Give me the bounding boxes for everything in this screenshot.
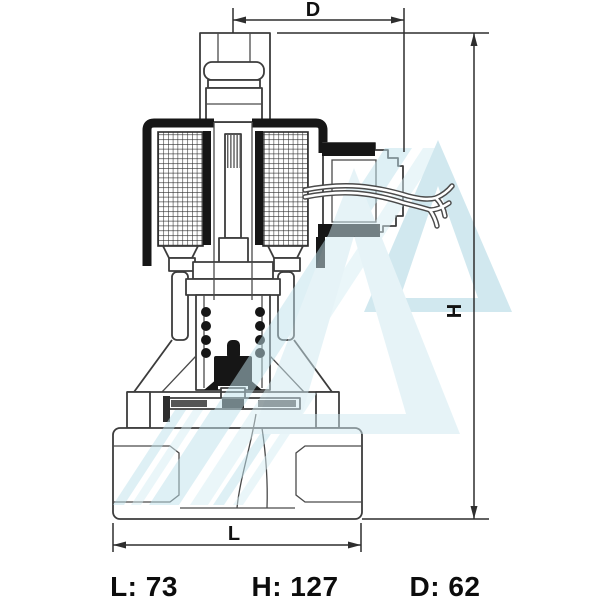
- l-arrow-right: [348, 542, 361, 549]
- coil-terminal-right: [274, 258, 300, 271]
- coil-terminal-left: [169, 258, 195, 271]
- h-dim-label: H: [444, 304, 466, 318]
- connector-neck: [208, 80, 260, 88]
- flange-flare-inner: [162, 356, 196, 392]
- diaphragm-inset-left: [171, 400, 207, 407]
- d-dim-label: D: [306, 0, 320, 21]
- hex-flat-left: [127, 392, 150, 428]
- core-bar-left: [203, 131, 211, 245]
- armature-hatch: [226, 135, 240, 168]
- coil-winding-left: [158, 132, 203, 246]
- dimension-l: L: [113, 523, 361, 552]
- h-arrow-bottom: [471, 506, 478, 519]
- solenoid-valve-diagram: D H L L: 73 H: 127 D: 62: [0, 0, 600, 600]
- value-d: D: 62: [410, 571, 481, 600]
- l-arrow-left: [113, 542, 126, 549]
- diaphragm-hook: [163, 396, 170, 422]
- gland-top-bar: [322, 143, 375, 156]
- connector-plug: [200, 33, 270, 122]
- bobbin-foot-left: [163, 246, 198, 258]
- connector-cap: [204, 62, 264, 80]
- l-dim-label: L: [228, 523, 240, 545]
- drawing-canvas: D H L L: 73 H: 127 D: 62: [0, 0, 600, 600]
- flange-flare: [134, 340, 172, 392]
- bonnet-plate-upper: [193, 262, 273, 279]
- bobbin-foot-right: [268, 246, 303, 258]
- value-l: L: 73: [110, 571, 178, 600]
- core-bar-right: [255, 131, 263, 245]
- d-arrow-right: [391, 17, 404, 24]
- connector-body: [206, 88, 262, 122]
- h-arrow-top: [471, 33, 478, 46]
- dimension-values-row: L: 73 H: 127 D: 62: [110, 571, 480, 600]
- coil-winding-right: [263, 132, 308, 246]
- value-h: H: 127: [251, 571, 338, 600]
- bonnet-plate-lower: [186, 279, 280, 295]
- coil-assembly: [147, 122, 323, 271]
- d-arrow-left: [233, 17, 246, 24]
- armature-foot: [219, 238, 248, 264]
